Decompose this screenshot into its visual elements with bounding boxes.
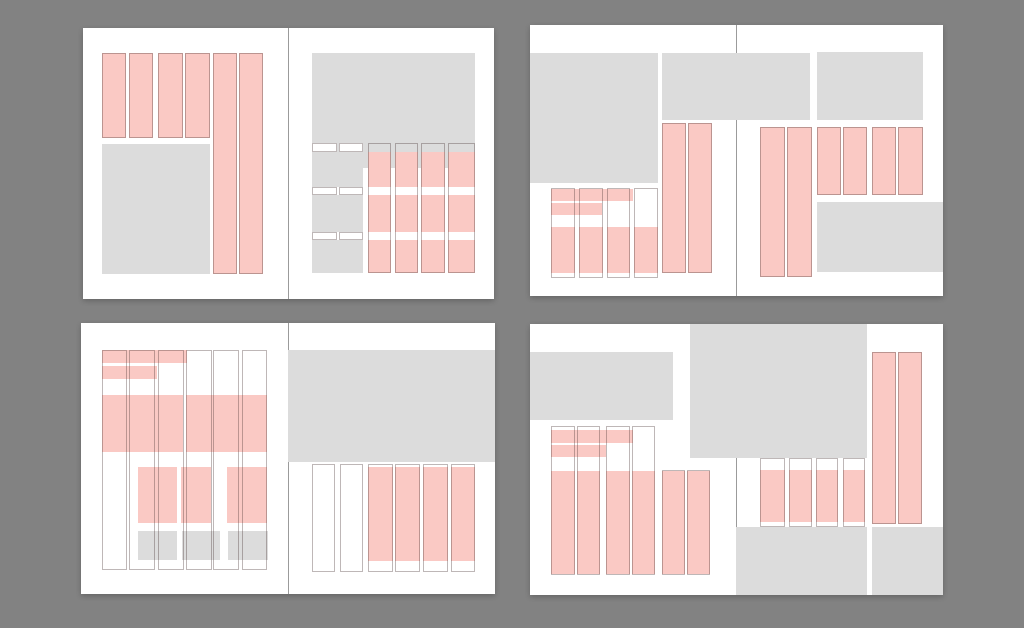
column-guide: [102, 350, 127, 570]
column-guide: [421, 143, 445, 273]
text-column: [102, 53, 126, 138]
text-column: [129, 53, 153, 138]
image-placeholder: [312, 195, 363, 232]
column-guide: [213, 350, 239, 570]
column-guide: [607, 188, 630, 278]
text-column: [817, 127, 841, 195]
spread-bottom-left: [81, 323, 495, 594]
page-spine: [288, 28, 289, 299]
spread-top-right: [530, 25, 943, 296]
column-guide: [687, 470, 710, 575]
column-guide: [368, 464, 393, 572]
column-guide: [789, 458, 812, 527]
column-guide: [312, 464, 335, 572]
image-placeholder: [817, 52, 923, 120]
spread-top-left: [83, 28, 494, 299]
text-column: [662, 123, 686, 273]
text-column: [872, 127, 896, 195]
image-placeholder: [872, 527, 943, 595]
caption-box: [339, 232, 363, 240]
layout-mockup-canvas: [0, 0, 1024, 628]
column-guide: [340, 464, 363, 572]
column-guide: [451, 464, 475, 572]
image-placeholder: [817, 202, 943, 272]
image-placeholder: [102, 144, 210, 274]
column-guide: [816, 458, 838, 527]
text-column: [158, 53, 183, 138]
caption-box: [312, 187, 337, 195]
caption-box: [339, 187, 363, 195]
caption-box: [339, 143, 363, 152]
caption-box: [312, 232, 337, 240]
text-column: [760, 127, 785, 277]
column-guide: [242, 350, 267, 570]
text-column: [898, 352, 922, 524]
image-placeholder: [312, 152, 363, 187]
caption-box: [312, 143, 337, 152]
column-guide: [395, 464, 420, 572]
text-column: [185, 53, 210, 138]
column-guide: [395, 143, 418, 273]
image-placeholder: [530, 352, 673, 420]
image-placeholder: [690, 324, 867, 458]
column-guide: [448, 143, 475, 273]
column-guide: [551, 426, 575, 575]
column-guide: [577, 426, 600, 575]
text-column: [688, 123, 712, 273]
column-guide: [579, 188, 603, 278]
column-guide: [760, 458, 785, 527]
image-placeholder: [662, 53, 810, 120]
spread-bottom-right: [530, 324, 943, 595]
column-guide: [551, 188, 575, 278]
image-placeholder: [312, 240, 363, 273]
image-placeholder: [530, 53, 658, 183]
text-column: [872, 352, 896, 524]
column-guide: [423, 464, 448, 572]
column-guide: [662, 470, 685, 575]
text-column: [213, 53, 237, 274]
column-guide: [129, 350, 155, 570]
image-placeholder: [736, 527, 867, 595]
column-guide: [634, 188, 658, 278]
text-column: [787, 127, 812, 277]
column-guide: [606, 426, 630, 575]
column-guide: [632, 426, 655, 575]
text-column: [239, 53, 263, 274]
column-guide: [843, 458, 865, 527]
column-guide: [368, 143, 391, 273]
column-guide: [186, 350, 212, 570]
column-guide: [158, 350, 184, 570]
text-column: [898, 127, 923, 195]
text-column: [843, 127, 867, 195]
image-placeholder: [288, 350, 495, 462]
